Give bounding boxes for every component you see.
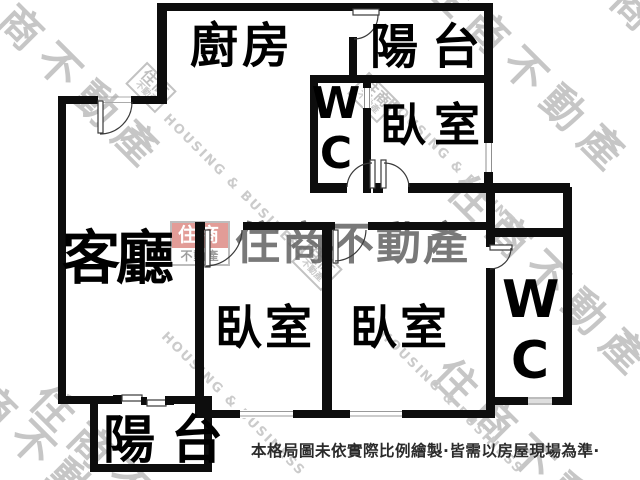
floor-plan-image: 住商不動產 住商不動產 住商不動產 住商不動產 住商不動產 住商不動產 住商不動…	[0, 0, 640, 480]
room-label-kitchen: 廚房	[190, 21, 294, 71]
wc-letter-w: W	[502, 270, 558, 330]
room-label-bedroom-right: 臥室	[350, 304, 450, 353]
room-label-wc-right: W C	[502, 270, 558, 392]
room-label-balcony-bottom: 陽台	[103, 414, 239, 469]
wc-letter-c: C	[502, 330, 558, 392]
room-label-bedroom-left: 臥室	[215, 304, 315, 353]
room-label-balcony-top: 陽台	[370, 22, 494, 72]
label-layer: 廚房 陽台 W C 臥室 客廳 臥室 臥室 W C 陽台 本格局圖未依實際比例繪…	[0, 0, 640, 480]
wc-letter-c: C	[310, 129, 362, 179]
room-label-living-room: 客廳	[62, 228, 170, 289]
room-label-wc-top: W C	[310, 79, 362, 179]
disclaimer-text: 本格局圖未依實際比例繪製·皆需以房屋現場為準·	[251, 439, 600, 461]
wc-letter-w: W	[310, 79, 362, 129]
room-label-bedroom-top: 臥室	[380, 101, 488, 149]
